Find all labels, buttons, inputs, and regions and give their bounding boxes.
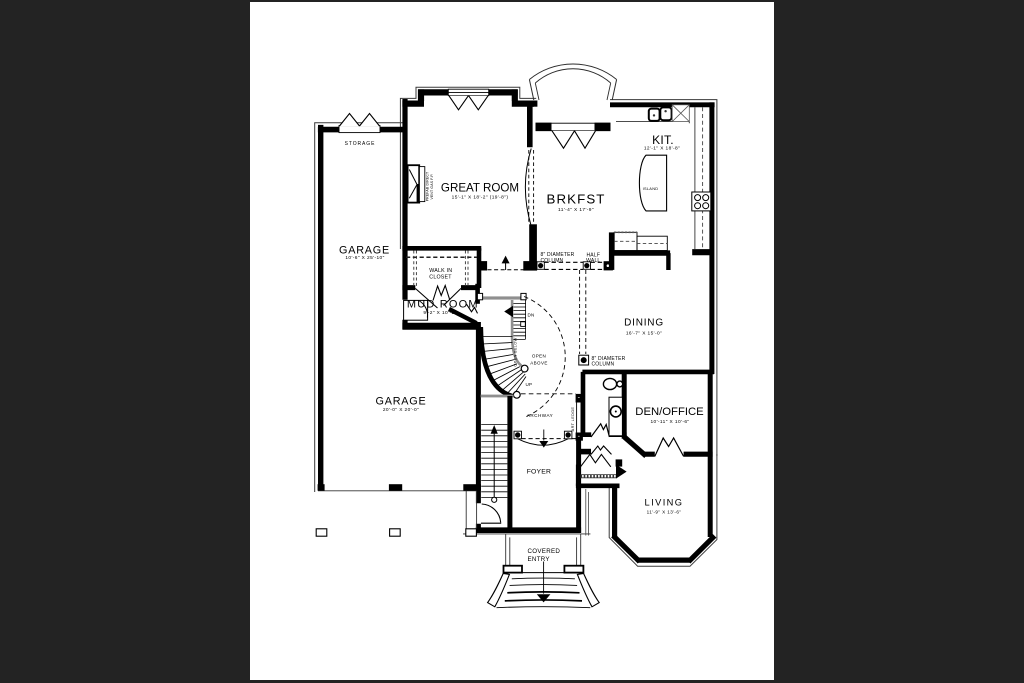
svg-text:GARAGE: GARAGE — [339, 244, 390, 256]
svg-text:11'-9" X 13'-6": 11'-9" X 13'-6" — [647, 510, 682, 515]
svg-text:MUD ROOM: MUD ROOM — [407, 298, 479, 310]
svg-text:STORAGE: STORAGE — [345, 141, 376, 147]
svg-text:DEN/OFFICE: DEN/OFFICE — [635, 406, 704, 418]
svg-text:ENTRY: ENTRY — [528, 556, 550, 563]
svg-text:ART LEDGE: ART LEDGE — [570, 407, 575, 432]
svg-text:9'-2" X 10'-2": 9'-2" X 10'-2" — [423, 310, 456, 316]
svg-text:15'-1" X 18'-2" (19'-8"): 15'-1" X 18'-2" (19'-8") — [452, 195, 509, 201]
svg-text:OPEN BELOW: OPEN BELOW — [512, 337, 517, 366]
svg-text:10'-6" X 25'-10": 10'-6" X 25'-10" — [345, 255, 384, 261]
svg-text:12'-1" X 18'-8": 12'-1" X 18'-8" — [644, 146, 680, 152]
svg-text:GARAGE: GARAGE — [376, 396, 427, 408]
svg-text:WALL: WALL — [586, 258, 600, 264]
svg-text:ARCHWAY: ARCHWAY — [527, 413, 553, 418]
svg-text:16'-7" X 15'-0": 16'-7" X 15'-0" — [626, 331, 662, 337]
svg-text:PREFAB DIRECT: PREFAB DIRECT — [426, 172, 430, 202]
svg-text:11'-4" X 17'-9": 11'-4" X 17'-9" — [558, 207, 594, 213]
svg-text:KIT.: KIT. — [652, 133, 674, 147]
svg-text:GREAT ROOM: GREAT ROOM — [441, 182, 519, 195]
svg-text:BRKFST: BRKFST — [546, 192, 605, 207]
svg-text:ISLAND: ISLAND — [643, 186, 659, 191]
svg-text:20'-0" X 20'-0": 20'-0" X 20'-0" — [383, 407, 419, 413]
svg-text:UP: UP — [526, 382, 533, 387]
svg-text:VENT GAS F.P.: VENT GAS F.P. — [430, 173, 434, 199]
svg-text:COLUMN: COLUMN — [592, 361, 615, 367]
svg-text:DINING: DINING — [624, 318, 664, 329]
svg-text:WALK IN: WALK IN — [429, 268, 452, 274]
svg-text:ABOVE: ABOVE — [530, 361, 548, 366]
svg-text:DN: DN — [528, 313, 535, 318]
svg-text:COVERED: COVERED — [528, 548, 561, 555]
svg-text:OPEN: OPEN — [532, 354, 546, 359]
svg-text:LIVING: LIVING — [645, 497, 684, 507]
svg-text:COLUMN: COLUMN — [541, 258, 564, 264]
svg-text:CLOSET: CLOSET — [429, 275, 452, 281]
svg-text:FOYER: FOYER — [527, 468, 551, 475]
svg-text:10'-11" X 10'-6": 10'-11" X 10'-6" — [650, 419, 689, 425]
